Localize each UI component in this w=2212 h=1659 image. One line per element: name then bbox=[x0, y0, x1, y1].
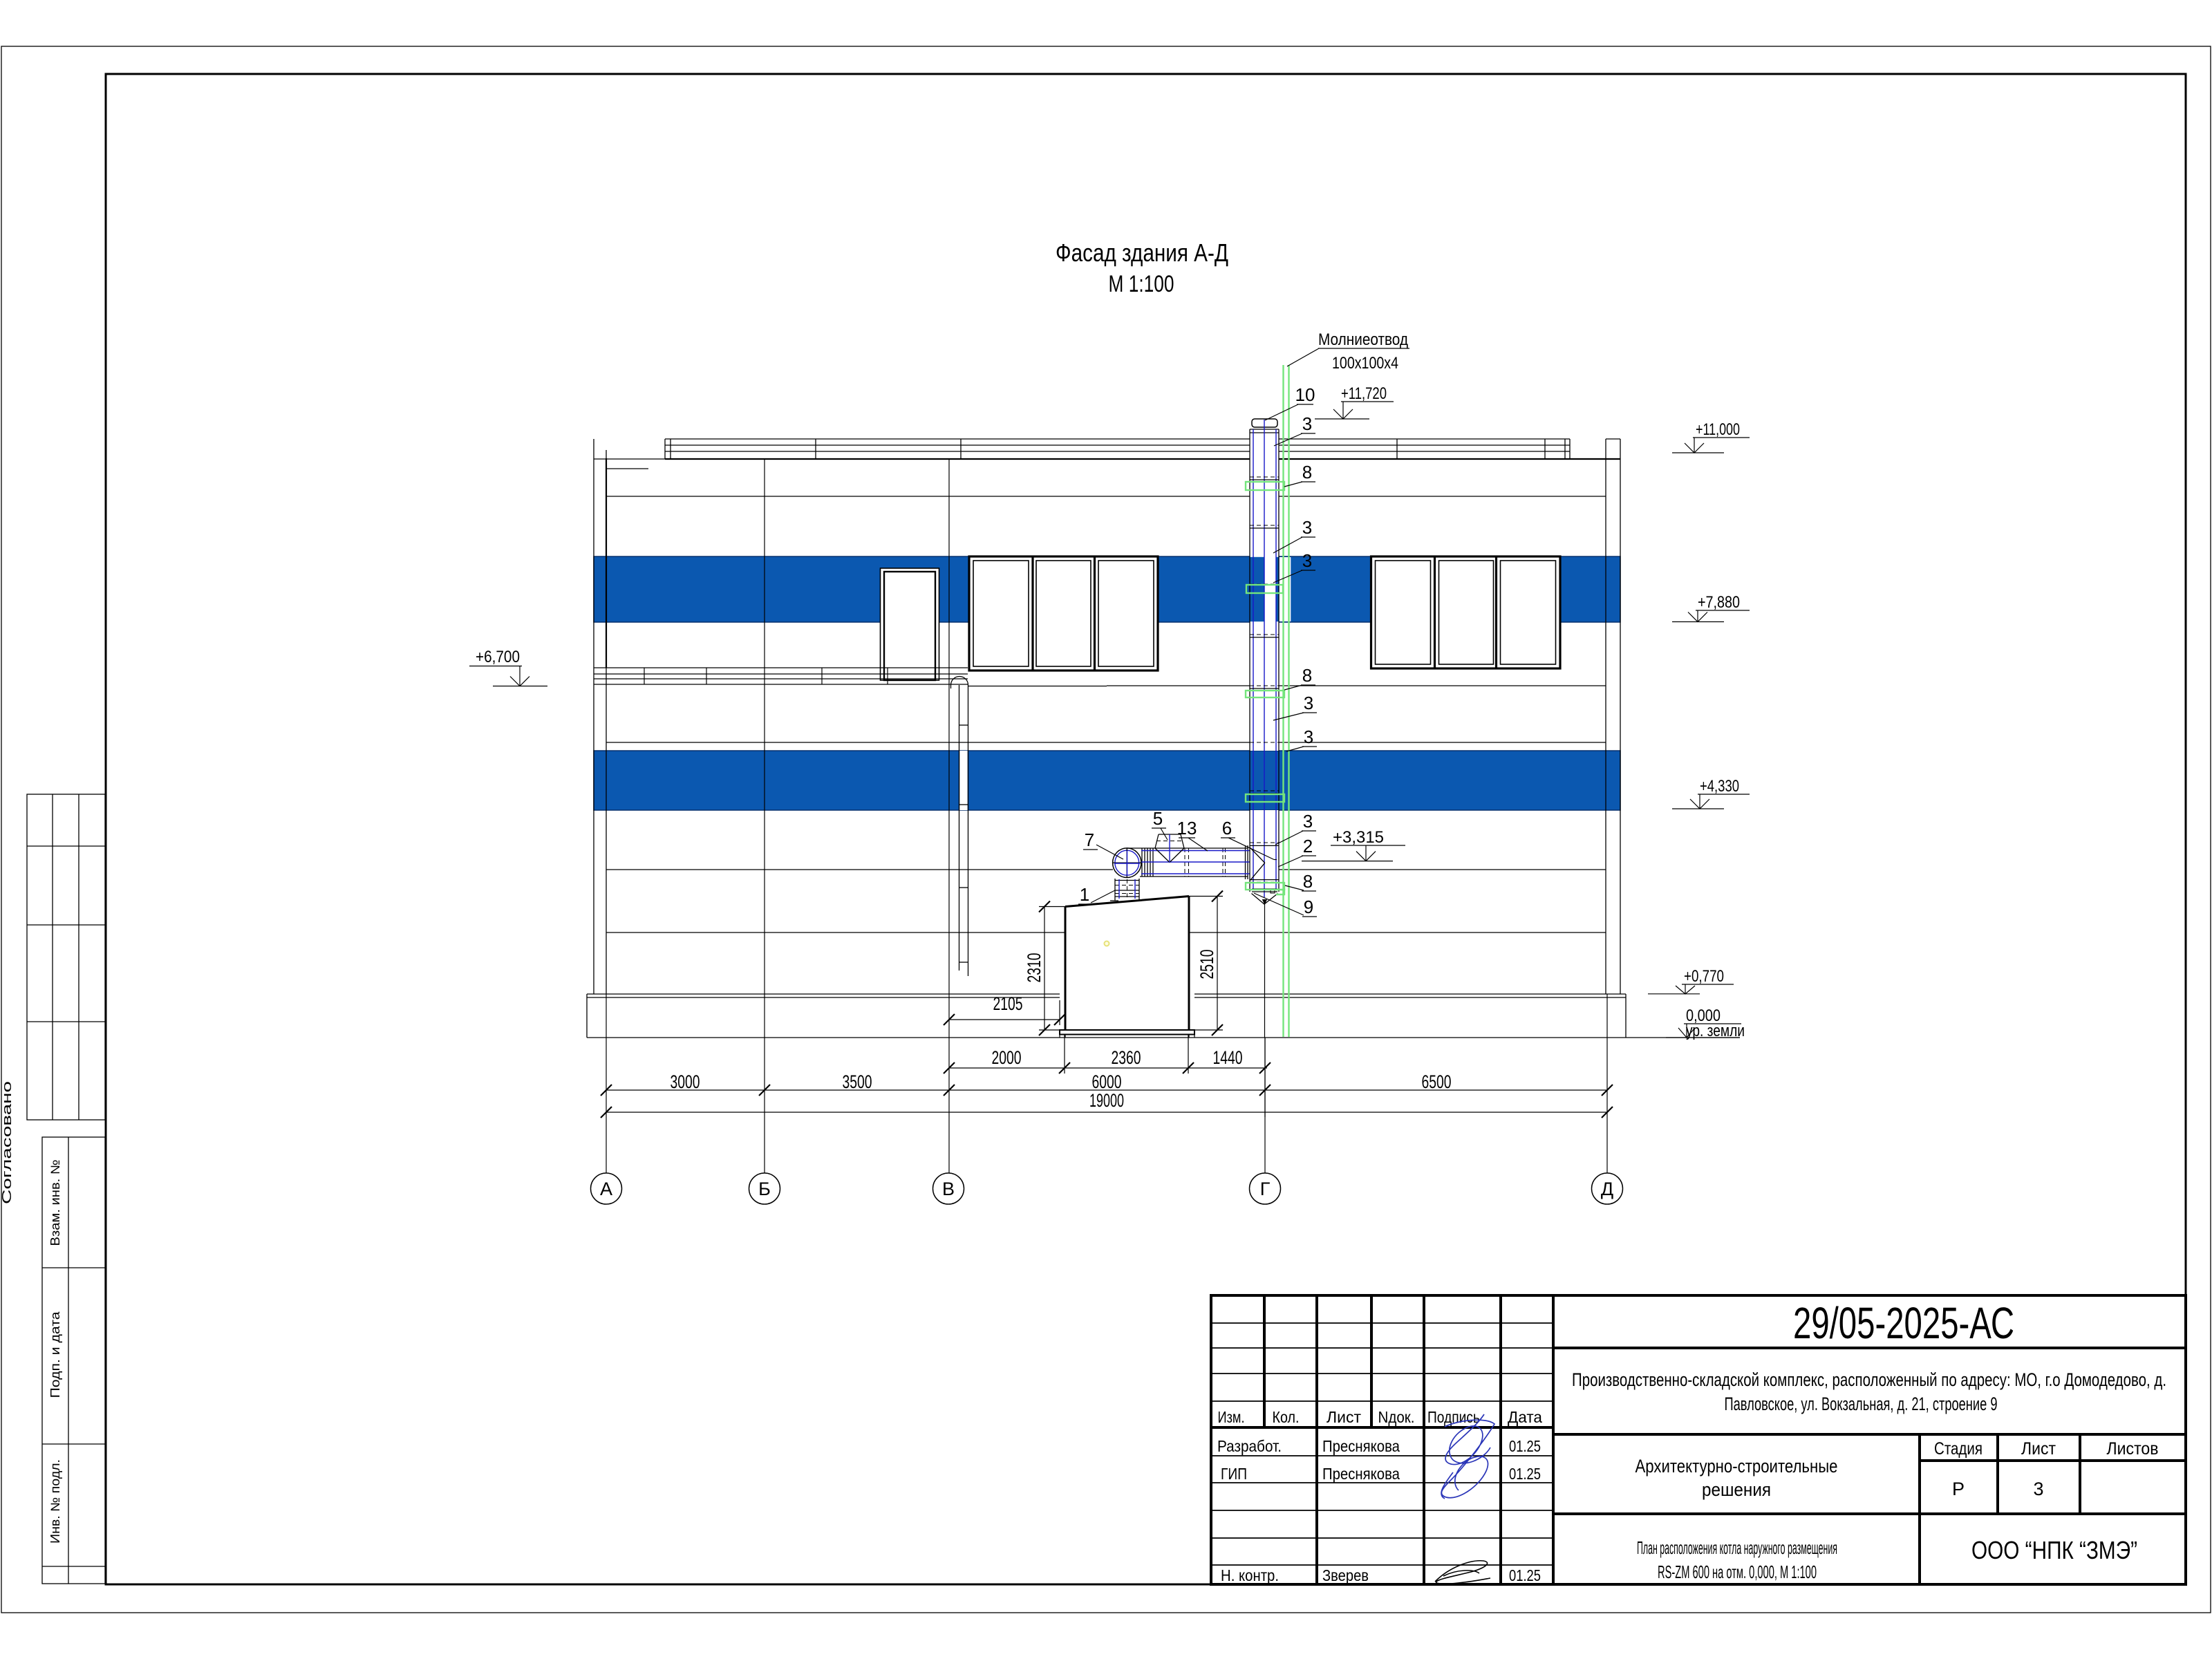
svg-text:Изм.: Изм. bbox=[1218, 1408, 1245, 1426]
svg-text:В: В bbox=[942, 1179, 955, 1199]
svg-text:3: 3 bbox=[2033, 1479, 2043, 1499]
svg-text:Молниеотвод: Молниеотвод bbox=[1318, 330, 1408, 349]
svg-text:+11,720: +11,720 bbox=[1341, 384, 1387, 403]
svg-text:10: 10 bbox=[1295, 384, 1315, 405]
svg-text:3: 3 bbox=[1303, 811, 1313, 832]
svg-text:Производственно-складской комп: Производственно-складской комплекс, расп… bbox=[1572, 1369, 2166, 1390]
svg-text:Павловское, ул. Вокзальная, д.: Павловское, ул. Вокзальная, д. 21, строе… bbox=[1725, 1394, 1998, 1414]
svg-text:3500: 3500 bbox=[843, 1071, 872, 1092]
svg-text:ГИП: ГИП bbox=[1221, 1465, 1247, 1483]
svg-text:+7,880: +7,880 bbox=[1698, 593, 1740, 612]
svg-text:+6,700: +6,700 bbox=[476, 648, 520, 666]
svg-text:1: 1 bbox=[1080, 884, 1089, 905]
svg-text:Дата: Дата bbox=[1508, 1408, 1542, 1426]
svg-text:Nдок.: Nдок. bbox=[1378, 1408, 1415, 1426]
svg-text:3: 3 bbox=[1302, 550, 1312, 571]
svg-text:Взам. инв. №: Взам. инв. № bbox=[48, 1160, 62, 1246]
svg-text:Фасад здания А-Д: Фасад здания А-Д bbox=[1056, 238, 1228, 267]
svg-text:100х100х4: 100х100х4 bbox=[1332, 354, 1398, 373]
svg-text:1440: 1440 bbox=[1213, 1047, 1243, 1068]
svg-text:6: 6 bbox=[1222, 818, 1232, 838]
svg-text:+4,330: +4,330 bbox=[1700, 777, 1739, 796]
svg-text:Р: Р bbox=[1952, 1479, 1965, 1499]
svg-text:8: 8 bbox=[1302, 665, 1312, 686]
svg-text:9: 9 bbox=[1304, 897, 1313, 917]
svg-text:Д: Д bbox=[1601, 1179, 1613, 1199]
svg-text:19000: 19000 bbox=[1089, 1090, 1124, 1111]
svg-text:2000: 2000 bbox=[992, 1047, 1022, 1068]
svg-text:Б: Б bbox=[758, 1179, 771, 1199]
svg-text:2510: 2510 bbox=[1197, 950, 1217, 980]
svg-text:3: 3 bbox=[1304, 693, 1313, 713]
svg-text:3: 3 bbox=[1302, 413, 1312, 434]
svg-text:Разработ.: Разработ. bbox=[1217, 1437, 1282, 1455]
svg-text:13: 13 bbox=[1177, 818, 1197, 838]
svg-text:ООО “НПК “ЗМЭ”: ООО “НПК “ЗМЭ” bbox=[1971, 1536, 2137, 1564]
svg-text:2360: 2360 bbox=[1112, 1047, 1141, 1068]
svg-text:Подп. и дата: Подп. и дата bbox=[48, 1311, 62, 1398]
svg-text:7: 7 bbox=[1085, 829, 1094, 850]
svg-text:Преснякова: Преснякова bbox=[1322, 1437, 1400, 1455]
svg-text:Архитектурно-строительные: Архитектурно-строительные bbox=[1635, 1456, 1838, 1477]
svg-text:решения: решения bbox=[1702, 1479, 1771, 1500]
svg-text:Кол.: Кол. bbox=[1273, 1408, 1300, 1426]
svg-text:29/05-2025-АС: 29/05-2025-АС bbox=[1793, 1298, 2014, 1348]
svg-text:2: 2 bbox=[1303, 836, 1313, 856]
svg-text:План расположения котла наружн: План расположения котла наружного размещ… bbox=[1637, 1537, 1837, 1558]
svg-text:+11,000: +11,000 bbox=[1696, 420, 1740, 439]
svg-text:3: 3 bbox=[1302, 517, 1312, 538]
svg-text:Инв. № подл.: Инв. № подл. bbox=[48, 1459, 62, 1544]
svg-text:6000: 6000 bbox=[1092, 1071, 1122, 1092]
svg-text:3000: 3000 bbox=[671, 1071, 700, 1092]
svg-text:Стадия: Стадия bbox=[1934, 1439, 1983, 1459]
svg-text:8: 8 bbox=[1303, 871, 1313, 892]
svg-text:8: 8 bbox=[1302, 462, 1312, 482]
svg-text:Н. контр.: Н. контр. bbox=[1221, 1566, 1279, 1584]
svg-text:RS-ZM 600 на отм. 0,000, М 1:: RS-ZM 600 на отм. 0,000, М 1:100 bbox=[1658, 1562, 1817, 1582]
svg-text:3: 3 bbox=[1304, 727, 1313, 747]
svg-text:Согласовано: Согласовано bbox=[0, 1081, 14, 1204]
svg-text:+0,770: +0,770 bbox=[1684, 967, 1724, 986]
svg-text:Лист: Лист bbox=[2021, 1439, 2056, 1459]
svg-text:Лист: Лист bbox=[1327, 1408, 1361, 1426]
svg-text:Зверев: Зверев bbox=[1322, 1566, 1369, 1584]
svg-text:2310: 2310 bbox=[1024, 953, 1044, 983]
svg-text:М 1:100: М 1:100 bbox=[1109, 271, 1174, 297]
svg-text:Г: Г bbox=[1260, 1179, 1271, 1199]
svg-text:А: А bbox=[600, 1179, 612, 1199]
svg-text:01.25: 01.25 bbox=[1509, 1566, 1541, 1584]
svg-text:+3,315: +3,315 bbox=[1333, 828, 1384, 847]
svg-text:5: 5 bbox=[1153, 808, 1163, 829]
svg-text:01.25: 01.25 bbox=[1509, 1465, 1541, 1483]
svg-text:Листов: Листов bbox=[2107, 1439, 2159, 1459]
svg-text:6500: 6500 bbox=[1422, 1071, 1452, 1092]
svg-text:ур. земли: ур. земли bbox=[1686, 1022, 1745, 1040]
svg-text:Преснякова: Преснякова bbox=[1322, 1465, 1400, 1483]
svg-text:2105: 2105 bbox=[993, 993, 1023, 1014]
svg-text:01.25: 01.25 bbox=[1509, 1437, 1541, 1455]
